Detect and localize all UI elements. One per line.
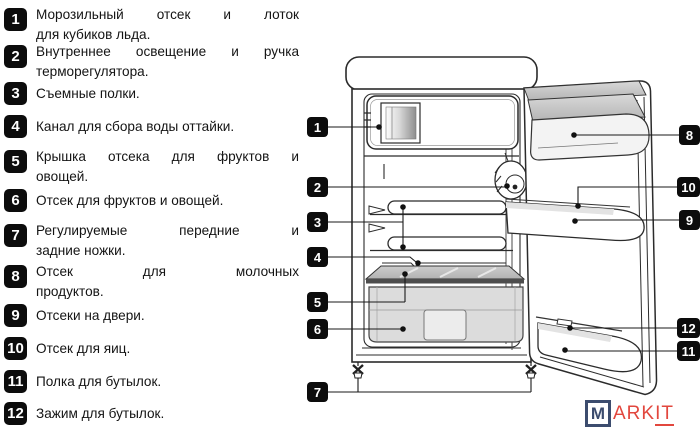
svg-text:5: 5 [314,295,321,310]
svg-text:7: 7 [314,385,321,400]
callout-12: 12 [677,318,700,338]
callout-1: 1 [307,117,328,137]
crisper-cover [366,266,524,284]
callout-4: 4 [307,247,328,267]
ice-tray [381,103,420,143]
callout-2: 2 [307,177,328,197]
callout-11: 11 [677,341,700,361]
svg-text:2: 2 [314,180,321,195]
manual-page: 1 Морозильный отсек и лотокдля кубиков л… [0,0,700,436]
foot-right [526,362,536,378]
callout-7: 7 [307,382,328,402]
callout-5: 5 [307,292,328,312]
watermark-m-box: M [585,400,611,427]
watermark-logo: M ARKIT [585,400,674,427]
callout-3: 3 [307,212,328,232]
dairy-compartment [528,94,649,160]
crisper-drawer [369,287,523,342]
svg-text:4: 4 [314,250,322,265]
svg-text:9: 9 [686,213,693,228]
watermark-text: ARKIT [613,403,674,425]
callout-8: 8 [679,125,700,145]
fridge-diagram: 1 2 3 4 5 6 7 8 10 9 12 11 [0,0,700,436]
svg-text:11: 11 [682,344,696,359]
svg-text:10: 10 [681,180,695,195]
callout-10: 10 [677,177,700,197]
svg-text:3: 3 [314,215,321,230]
callout-6: 6 [307,319,328,339]
foot-left [353,362,363,378]
svg-text:8: 8 [686,128,693,143]
callout-9: 9 [679,210,700,230]
svg-text:1: 1 [314,120,321,135]
svg-text:12: 12 [681,321,695,336]
shelf-lower [370,237,513,251]
svg-text:6: 6 [314,322,321,337]
